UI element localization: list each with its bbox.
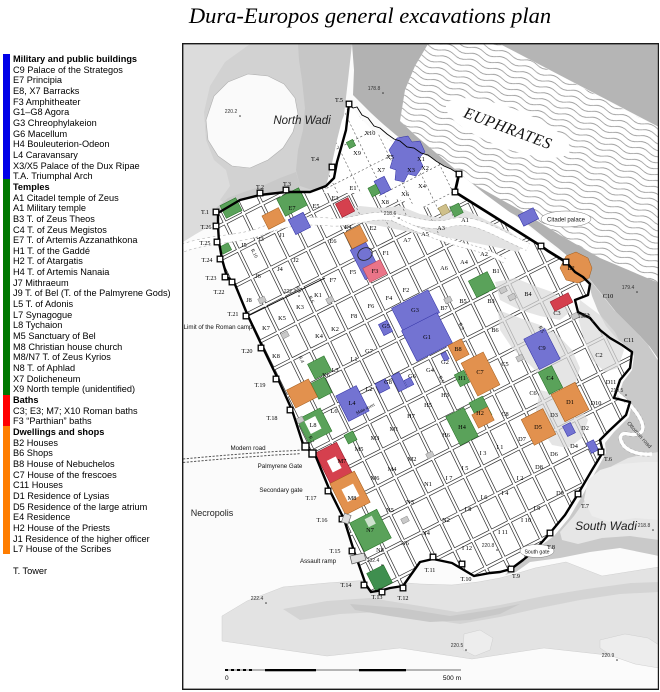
svg-text:D2: D2: [581, 425, 589, 432]
svg-text:218.8: 218.8: [638, 523, 651, 529]
svg-text:E4: E4: [345, 224, 353, 231]
svg-text:X6: X6: [401, 191, 409, 198]
svg-text:L6: L6: [331, 408, 338, 415]
svg-text:Citadel palace: Citadel palace: [547, 218, 586, 224]
svg-text:G4: G4: [426, 367, 435, 374]
svg-text:N1: N1: [424, 481, 432, 488]
svg-text:J3: J3: [258, 236, 264, 243]
svg-text:B8: B8: [454, 346, 461, 353]
svg-text:M4: M4: [388, 466, 398, 473]
svg-text:F3: F3: [372, 268, 379, 275]
svg-text:B2: B2: [567, 265, 574, 272]
svg-text:J4: J4: [277, 266, 283, 273]
svg-text:F2: F2: [403, 287, 410, 294]
svg-text:D7: D7: [518, 436, 526, 443]
svg-text:T.1: T.1: [201, 209, 209, 216]
svg-text:I 7: I 7: [446, 475, 453, 482]
svg-text:J8: J8: [246, 297, 252, 304]
svg-text:C1: C1: [582, 312, 589, 319]
svg-text:T.17: T.17: [305, 495, 316, 502]
svg-text:I 9: I 9: [534, 505, 541, 512]
svg-text:N2: N2: [442, 517, 450, 524]
svg-text:A1: A1: [461, 217, 469, 224]
svg-text:N5: N5: [386, 507, 394, 514]
svg-text:Palmyrene Gate: Palmyrene Gate: [258, 463, 303, 470]
svg-text:G5: G5: [382, 323, 390, 330]
svg-text:D5: D5: [534, 424, 542, 431]
svg-text:L8: L8: [310, 422, 317, 429]
svg-text:K7: K7: [262, 325, 270, 332]
svg-text:X10: X10: [365, 130, 376, 137]
svg-text:H1: H1: [458, 375, 466, 382]
svg-text:T.8: T.8: [547, 544, 555, 551]
svg-text:T.4: T.4: [311, 156, 319, 163]
svg-text:T.20: T.20: [241, 348, 252, 355]
svg-text:D4: D4: [570, 443, 579, 450]
svg-text:220.2: 220.2: [225, 109, 238, 115]
svg-text:D3: D3: [550, 412, 558, 419]
svg-text:X3: X3: [407, 167, 415, 174]
svg-text:A2: A2: [480, 251, 488, 258]
svg-text:218.6: 218.6: [384, 211, 397, 217]
svg-text:C3: C3: [553, 310, 560, 317]
svg-text:B5: B5: [459, 298, 466, 305]
svg-text:L2: L2: [366, 386, 373, 393]
svg-text:M1: M1: [390, 426, 399, 433]
svg-text:T.9: T.9: [512, 573, 520, 580]
svg-text:G2: G2: [441, 359, 449, 366]
svg-text:X1: X1: [417, 156, 425, 163]
svg-text:I 8: I 8: [465, 506, 472, 513]
svg-text:J2: J2: [293, 257, 299, 264]
svg-text:I 6: I 6: [481, 494, 488, 501]
svg-text:T.11: T.11: [425, 567, 436, 574]
svg-text:B3: B3: [487, 298, 494, 305]
svg-text:F4: F4: [386, 295, 394, 302]
svg-text:H6: H6: [442, 432, 450, 439]
svg-text:E5: E5: [313, 203, 320, 210]
svg-text:X7: X7: [377, 167, 385, 174]
svg-text:M7: M7: [338, 458, 347, 465]
svg-text:C6: C6: [529, 390, 536, 397]
svg-text:H4: H4: [458, 424, 467, 431]
svg-text:500 m: 500 m: [443, 675, 461, 682]
svg-text:I 3: I 3: [480, 450, 487, 457]
svg-text:T.6: T.6: [604, 456, 612, 463]
svg-text:B1: B1: [492, 268, 499, 275]
svg-text:0: 0: [225, 675, 229, 682]
svg-text:N4: N4: [422, 530, 431, 537]
svg-text:X9: X9: [353, 150, 361, 157]
svg-text:T.26: T.26: [200, 224, 211, 231]
svg-text:South gate: South gate: [524, 550, 549, 556]
svg-text:T.7: T.7: [581, 503, 589, 510]
svg-text:222.4: 222.4: [251, 596, 264, 602]
svg-text:L4: L4: [349, 400, 357, 407]
svg-text:C2: C2: [595, 352, 602, 359]
svg-text:222.3: 222.3: [284, 289, 297, 295]
svg-text:I 10: I 10: [521, 517, 531, 524]
svg-text:A5: A5: [421, 231, 429, 238]
svg-text:K2: K2: [331, 326, 339, 333]
svg-text:232.4: 232.4: [367, 558, 380, 564]
svg-text:B6: B6: [491, 327, 498, 334]
svg-text:G3: G3: [411, 307, 419, 314]
svg-text:T.21: T.21: [227, 311, 238, 318]
svg-text:C11: C11: [624, 337, 634, 344]
svg-text:T.13: T.13: [371, 594, 382, 601]
svg-text:T.24: T.24: [201, 257, 212, 264]
svg-text:F8: F8: [351, 313, 358, 320]
svg-text:X4: X4: [418, 183, 427, 190]
svg-text:L3: L3: [332, 367, 339, 374]
svg-text:I 12: I 12: [462, 545, 472, 552]
svg-text:M6: M6: [371, 475, 380, 482]
svg-text:Modern road: Modern road: [230, 445, 266, 452]
svg-text:I 1: I 1: [497, 444, 504, 451]
svg-text:K3: K3: [296, 304, 304, 311]
svg-text:Necropolis: Necropolis: [191, 508, 234, 518]
svg-text:C10: C10: [603, 293, 614, 300]
svg-text:North Wadi: North Wadi: [273, 115, 331, 127]
svg-text:E7: E7: [289, 205, 296, 212]
svg-text:I5: I5: [241, 242, 246, 249]
svg-text:F1: F1: [383, 250, 390, 257]
svg-text:T.23: T.23: [205, 275, 216, 282]
svg-text:C7: C7: [476, 369, 483, 376]
svg-text:T.18: T.18: [266, 415, 277, 422]
svg-text:I 5: I 5: [462, 465, 469, 472]
svg-text:I 4: I 4: [502, 490, 510, 497]
svg-text:G8: G8: [384, 379, 392, 386]
svg-text:E3: E3: [332, 195, 339, 202]
svg-text:G7: G7: [365, 348, 373, 355]
svg-text:F5: F5: [350, 269, 357, 276]
svg-text:H3: H3: [441, 392, 449, 399]
svg-text:K6: K6: [322, 372, 330, 379]
svg-text:L1: L1: [351, 356, 358, 363]
svg-text:T.2: T.2: [256, 184, 264, 191]
svg-text:219.5: 219.5: [611, 388, 624, 394]
svg-text:D11: D11: [606, 379, 617, 386]
svg-text:M2: M2: [408, 456, 417, 463]
svg-text:A4: A4: [460, 259, 469, 266]
svg-text:K1: K1: [314, 292, 322, 299]
svg-text:South Wadi: South Wadi: [575, 519, 637, 533]
svg-text:C5: C5: [501, 361, 508, 368]
svg-text:X5: X5: [386, 154, 394, 161]
svg-text:X8: X8: [381, 199, 389, 206]
svg-text:T.3: T.3: [283, 181, 291, 188]
svg-text:N6: N6: [401, 540, 409, 547]
svg-text:D10: D10: [591, 400, 602, 407]
svg-text:T.22: T.22: [213, 289, 224, 296]
svg-text:220.9: 220.9: [602, 653, 615, 659]
svg-text:K5: K5: [278, 315, 286, 322]
svg-text:G6: G6: [408, 373, 416, 380]
svg-text:T.10: T.10: [460, 576, 471, 583]
svg-text:220.5: 220.5: [451, 643, 464, 649]
svg-text:178.8: 178.8: [368, 86, 381, 92]
svg-text:C8: C8: [501, 411, 508, 418]
svg-text:J1: J1: [279, 232, 285, 239]
svg-text:A3: A3: [437, 225, 445, 232]
svg-text:C9: C9: [538, 345, 545, 352]
svg-text:K4: K4: [315, 333, 324, 340]
svg-text:E1: E1: [350, 185, 357, 192]
svg-text:T.25: T.25: [199, 240, 210, 247]
svg-text:E2: E2: [370, 225, 377, 232]
svg-text:F7: F7: [330, 277, 337, 284]
svg-text:N7: N7: [366, 527, 374, 534]
svg-text:T.19: T.19: [254, 382, 265, 389]
svg-text:A6: A6: [440, 265, 448, 272]
svg-text:B7: B7: [440, 305, 447, 312]
svg-text:T.15: T.15: [329, 548, 340, 555]
svg-text:T.12: T.12: [397, 595, 408, 602]
svg-text:T.14: T.14: [340, 582, 351, 589]
svg-text:I 2: I 2: [517, 475, 524, 482]
svg-text:K8: K8: [272, 353, 280, 360]
svg-text:I 11: I 11: [498, 529, 508, 536]
svg-text:N8: N8: [376, 547, 384, 554]
svg-text:H7: H7: [407, 413, 415, 420]
svg-text:M5: M5: [355, 446, 364, 453]
svg-text:H2: H2: [476, 410, 484, 417]
svg-text:Limit of the Roman camp: Limit of the Roman camp: [184, 324, 253, 331]
svg-text:E6: E6: [330, 238, 337, 245]
svg-text:220.8: 220.8: [482, 543, 495, 549]
svg-text:D6: D6: [550, 451, 558, 458]
svg-text:N3: N3: [406, 499, 414, 506]
svg-text:X2: X2: [421, 165, 429, 172]
svg-text:C4: C4: [546, 375, 554, 382]
svg-text:M8: M8: [348, 495, 357, 502]
svg-text:T.16: T.16: [316, 517, 327, 524]
svg-text:T.5: T.5: [335, 97, 343, 104]
svg-text:Assault ramp: Assault ramp: [300, 558, 337, 565]
svg-text:J6: J6: [255, 273, 261, 280]
svg-text:D1: D1: [566, 399, 574, 406]
svg-text:Secondary gate: Secondary gate: [259, 487, 303, 494]
svg-text:179.4: 179.4: [622, 285, 635, 291]
svg-text:G1: G1: [423, 334, 431, 341]
svg-text:D9: D9: [556, 490, 564, 497]
svg-text:M3: M3: [371, 435, 380, 442]
svg-text:D8: D8: [535, 464, 543, 471]
svg-text:F6: F6: [368, 303, 375, 310]
svg-text:A7: A7: [403, 237, 411, 244]
svg-text:H5: H5: [424, 402, 432, 409]
svg-text:B4: B4: [524, 291, 532, 298]
